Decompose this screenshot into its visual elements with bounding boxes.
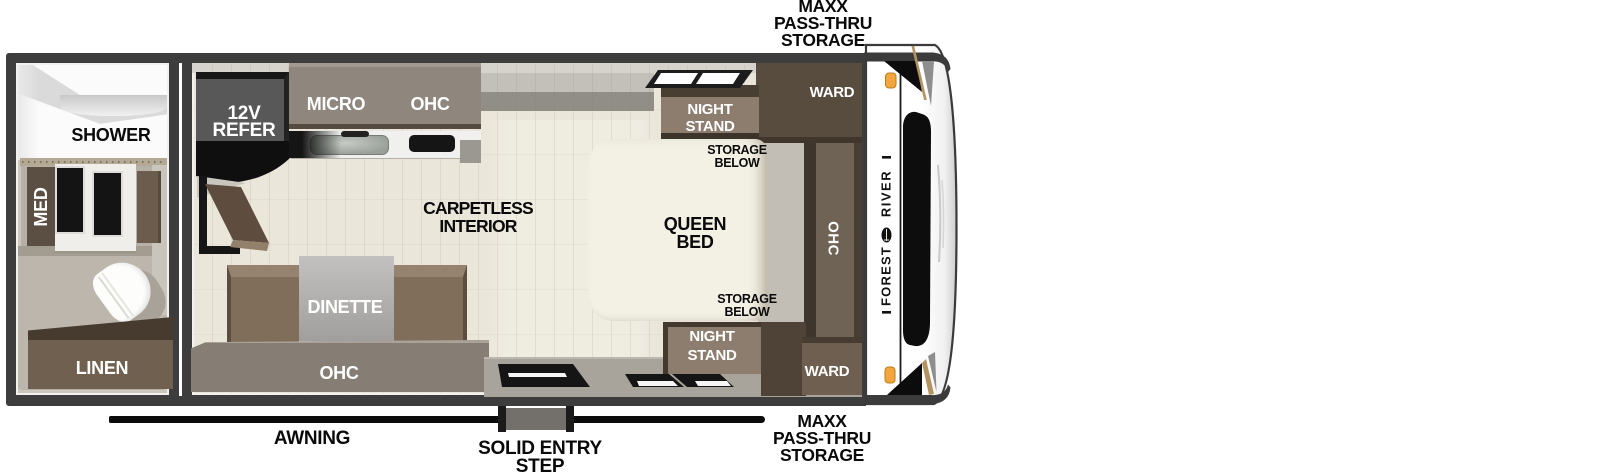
svg-text:FOREST: FOREST (879, 246, 894, 306)
svg-text:RIVER: RIVER (879, 170, 894, 217)
